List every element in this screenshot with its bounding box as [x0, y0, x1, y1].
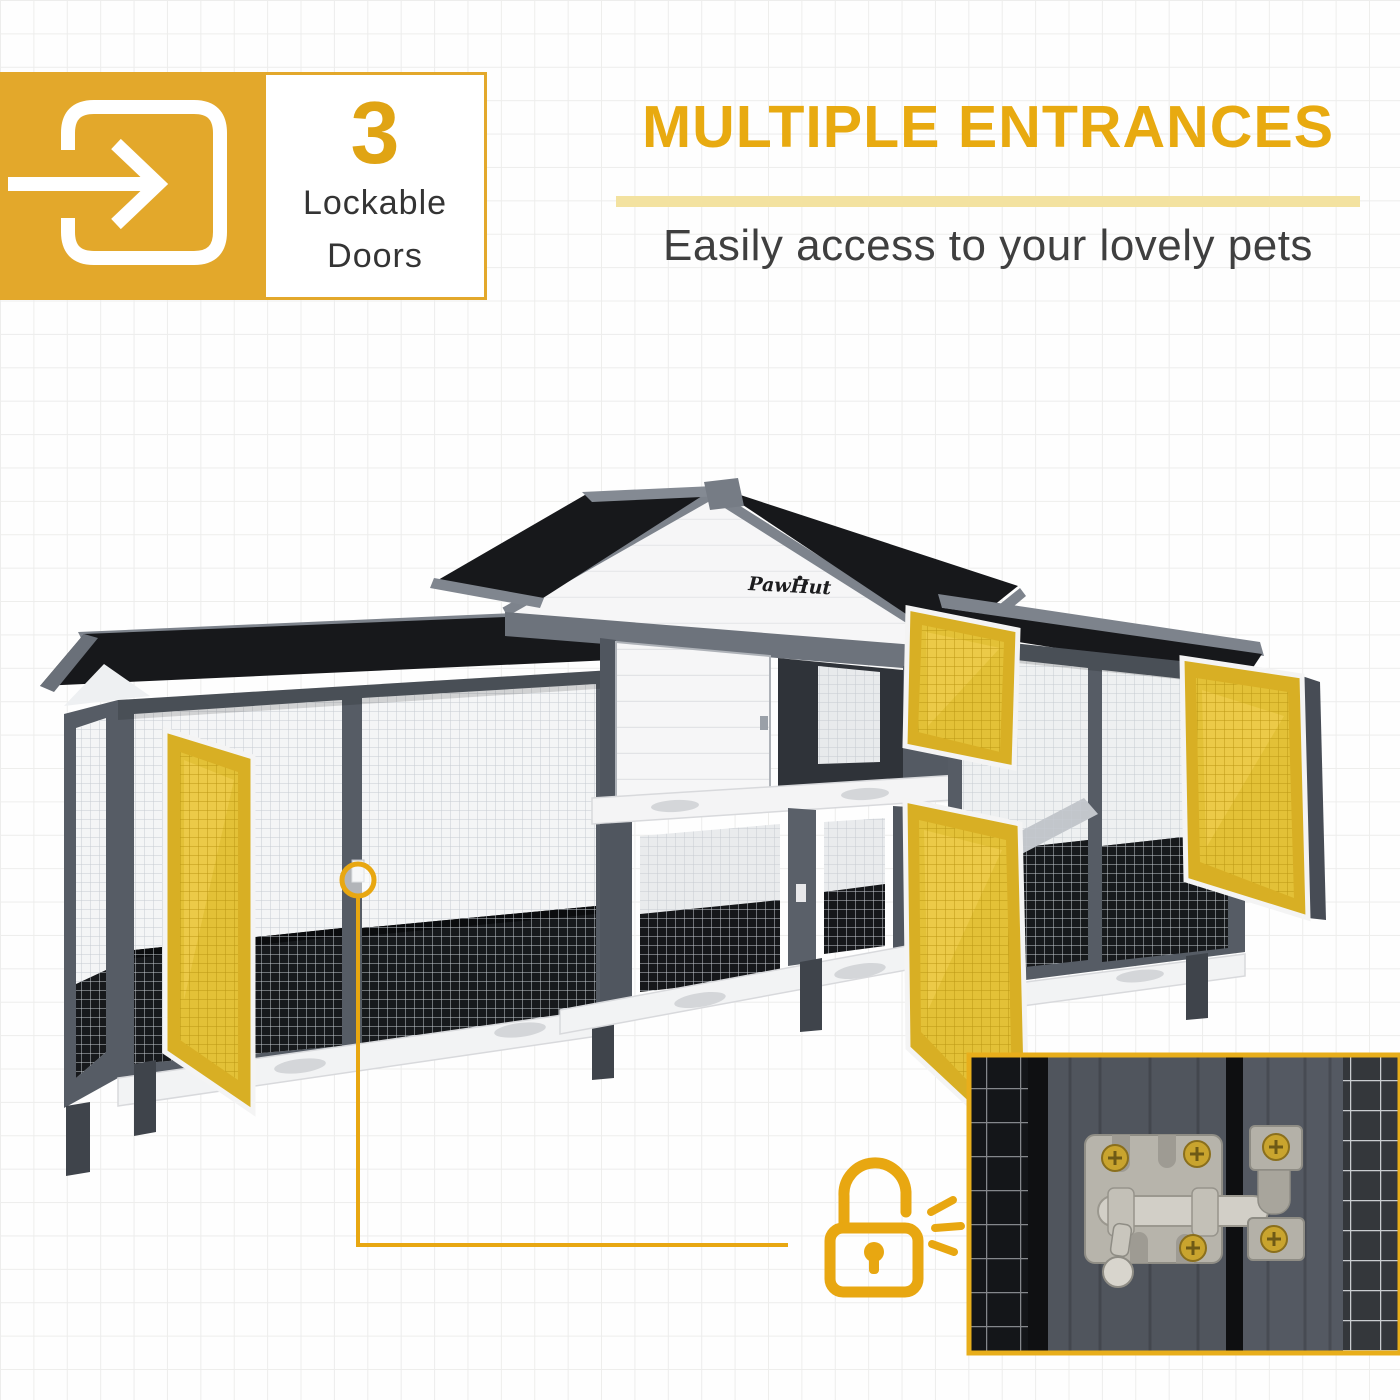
hutch-photo: PawHut [0, 0, 1400, 1400]
left-run [40, 608, 634, 1176]
emphasis-lines [931, 1200, 961, 1252]
highlighted-door-right-side [1182, 658, 1326, 920]
door-latch-marker [342, 864, 374, 896]
lock-closeup-inset [967, 1053, 1400, 1355]
brand-logo: PawHut [747, 573, 832, 599]
highlighted-door-left [165, 730, 253, 1112]
open-padlock-icon [830, 1163, 918, 1292]
highlighted-door-top-right [905, 608, 1018, 768]
marketing-page: 3 Lockable Doors MULTIPLE ENTRANCES Easi… [0, 0, 1400, 1400]
